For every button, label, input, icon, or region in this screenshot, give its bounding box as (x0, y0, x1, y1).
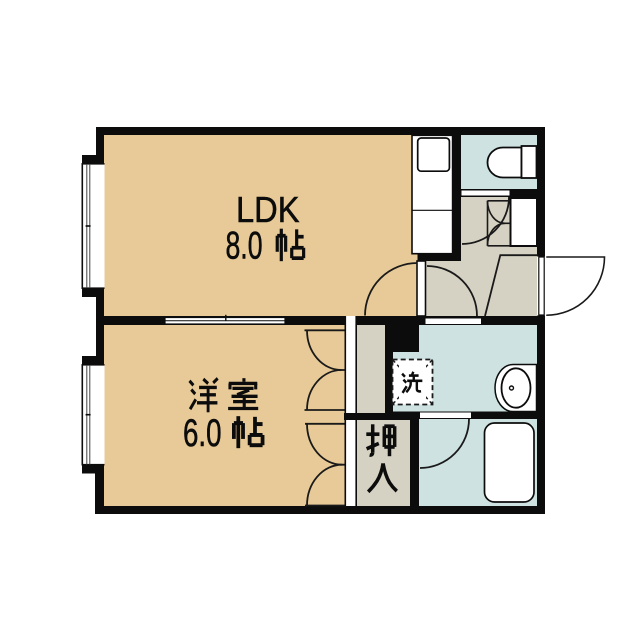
svg-text:6.0: 6.0 (183, 412, 222, 455)
svg-text:8.0: 8.0 (226, 225, 263, 268)
